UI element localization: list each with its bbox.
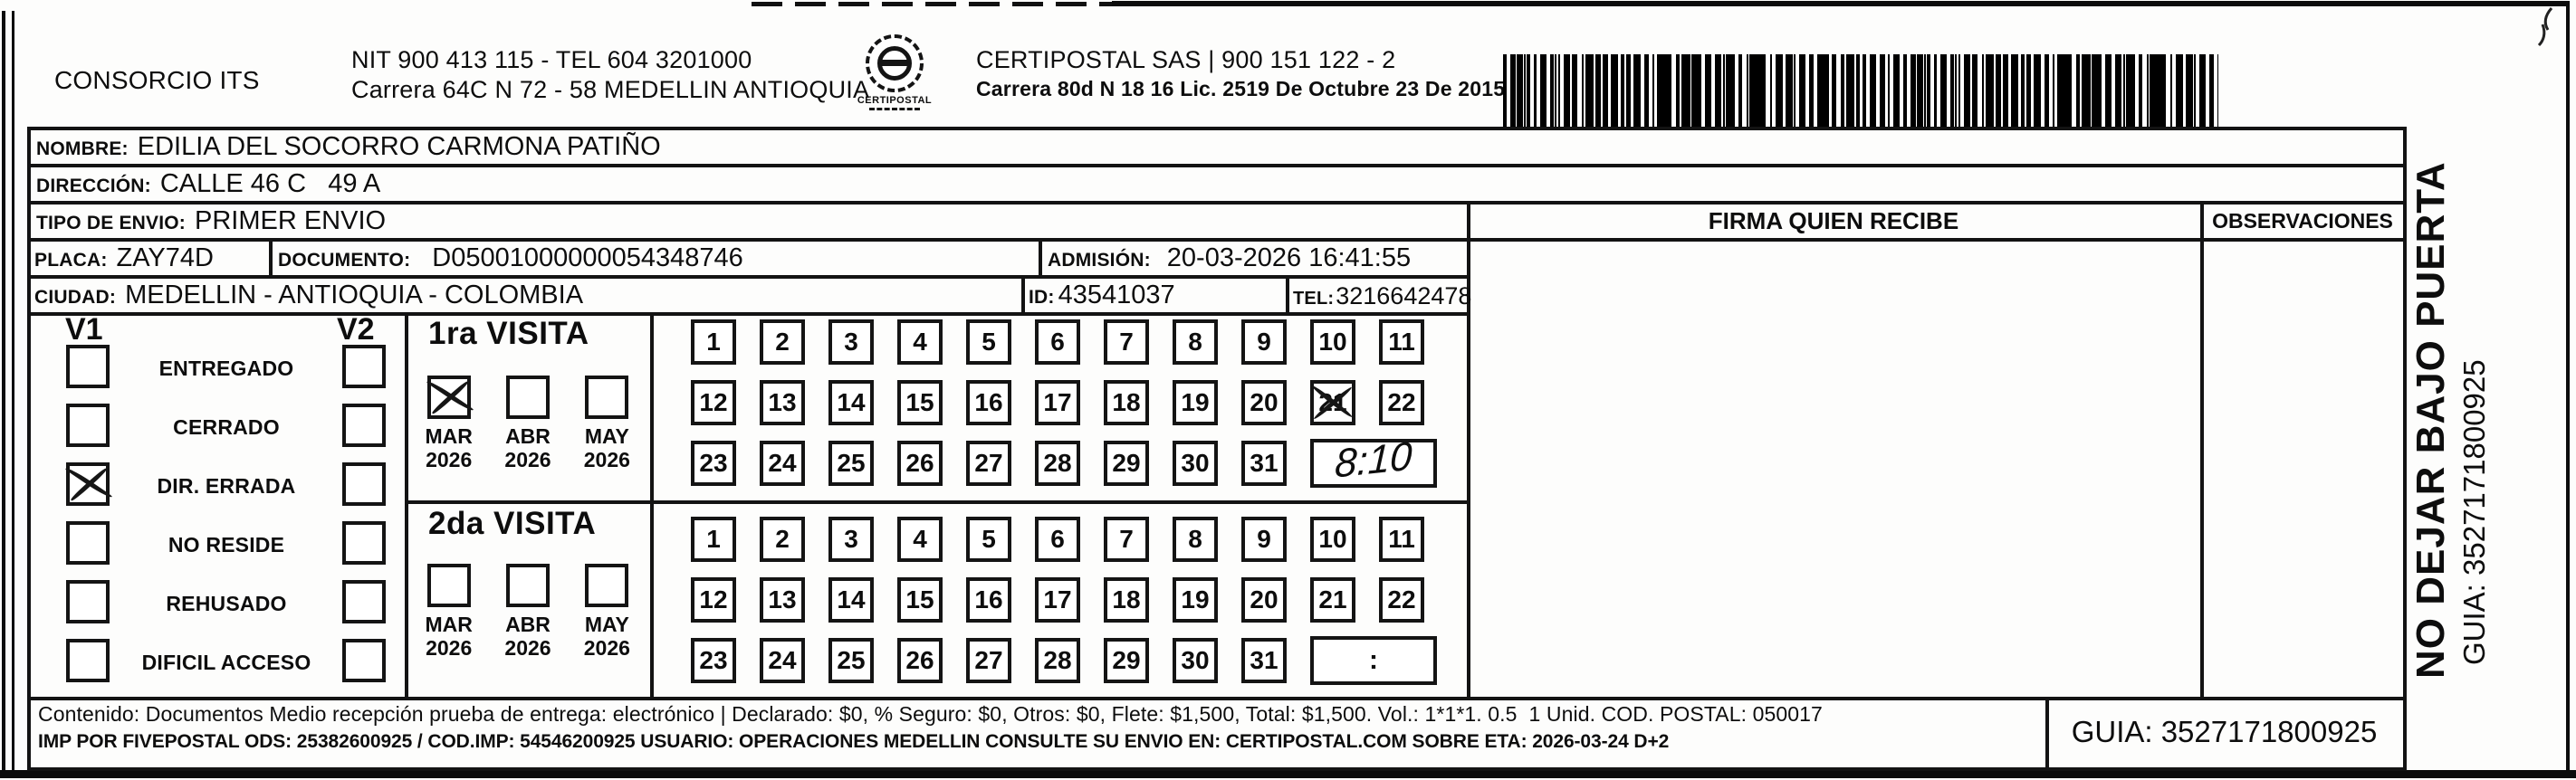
- ciudad-value: MEDELLIN - ANTIOQUIA - COLOMBIA: [125, 281, 583, 310]
- tel-cell: TEL: 3216642478: [1293, 282, 1471, 310]
- month-checkbox[interactable]: [427, 564, 471, 607]
- barcode-icon: [1503, 54, 2218, 127]
- day-cell[interactable]: 6: [1035, 319, 1080, 365]
- v1-checkbox[interactable]: [66, 521, 110, 565]
- day-cell[interactable]: 11: [1379, 517, 1424, 562]
- company-name-line: CERTIPOSTAL SAS | 900 151 122 - 2: [976, 45, 1505, 75]
- day-cell[interactable]: 4: [897, 319, 943, 365]
- handwritten-time: 8:10: [1335, 433, 1413, 487]
- year-label: 2026: [504, 636, 551, 660]
- day-cell[interactable]: 1: [691, 517, 736, 562]
- v2-checkbox[interactable]: [342, 639, 386, 682]
- day-cell[interactable]: 7: [1104, 517, 1149, 562]
- status-option-row: NO RESIDE: [27, 521, 405, 580]
- v1-checkbox[interactable]: [66, 580, 110, 623]
- day-cell[interactable]: 28: [1035, 638, 1080, 683]
- v2-checkbox[interactable]: [342, 462, 386, 506]
- day-cell[interactable]: 11: [1379, 319, 1424, 365]
- status-option-label: DIFICIL ACCESO: [118, 651, 335, 675]
- second-visit-time-box[interactable]: :: [1310, 636, 1437, 685]
- day-cell[interactable]: 20: [1241, 577, 1287, 623]
- day-cell[interactable]: 23: [691, 441, 736, 486]
- year-label: 2026: [426, 448, 472, 471]
- status-option-row: DIR. ERRADA: [27, 462, 405, 521]
- day-cell[interactable]: 23: [691, 638, 736, 683]
- day-cell[interactable]: 14: [828, 577, 874, 623]
- v2-checkbox[interactable]: [342, 404, 386, 447]
- ciudad-cell: CIUDAD: MEDELLIN - ANTIOQUIA - COLOMBIA: [34, 281, 583, 310]
- day-cell[interactable]: 12: [691, 380, 736, 425]
- month-label: ABR: [505, 424, 551, 448]
- day-cell[interactable]: 30: [1173, 638, 1218, 683]
- scan-bottom-line: [0, 770, 2576, 778]
- day-cell[interactable]: 19: [1173, 380, 1218, 425]
- placa-label: PLACA:: [34, 250, 108, 271]
- tel-value: 3216642478: [1336, 282, 1471, 310]
- second-visit-title: 2da VISITA: [428, 506, 596, 542]
- ciudad-label: CIUDAD:: [34, 287, 116, 309]
- status-option-label: REHUSADO: [118, 592, 335, 616]
- direccion-row: DIRECCIÓN: CALLE 46 C 49 A: [36, 169, 380, 199]
- status-option-row: REHUSADO: [27, 580, 405, 639]
- documento-cell: DOCUMENTO: D05001000000054348746: [278, 243, 743, 273]
- month-option: MAY 2026: [572, 564, 642, 660]
- month-checkbox[interactable]: [506, 376, 550, 419]
- nombre-row: NOMBRE: EDILIA DEL SOCORRO CARMONA PATIÑ…: [36, 132, 661, 162]
- day-cell[interactable]: 17: [1035, 577, 1080, 623]
- day-cell[interactable]: 25: [828, 638, 874, 683]
- day-cell[interactable]: 10: [1310, 319, 1355, 365]
- day-cell[interactable]: 3: [828, 517, 874, 562]
- guia-number-vertical: GUIA: 3527171800925: [2456, 158, 2494, 665]
- second-visit-months: MAR 2026 ABR 2026 MAY 2026: [414, 564, 642, 660]
- admision-value: 20-03-2026 16:41:55: [1167, 243, 1411, 273]
- time-colon: :: [1369, 645, 1378, 676]
- day-cell[interactable]: 7: [1104, 319, 1149, 365]
- day-cell[interactable]: 26: [897, 638, 943, 683]
- month-label: ABR: [505, 613, 551, 636]
- month-option: ABR 2026: [493, 564, 562, 660]
- month-option: MAY 2026: [572, 376, 642, 471]
- id-value: 43541037: [1058, 281, 1175, 310]
- day-cell[interactable]: 18: [1104, 380, 1149, 425]
- day-cell[interactable]: 13: [760, 577, 805, 623]
- id-cell: ID: 43541037: [1029, 281, 1175, 310]
- day-cell[interactable]: 24: [760, 638, 805, 683]
- day-cell[interactable]: 8: [1173, 517, 1218, 562]
- direccion-value: CALLE 46 C 49 A: [160, 169, 380, 199]
- day-cell[interactable]: 13: [760, 380, 805, 425]
- day-cell[interactable]: 5: [966, 319, 1011, 365]
- month-option: ABR 2026: [493, 376, 562, 471]
- logo-underline: [869, 108, 920, 110]
- v1-column-header: V1: [65, 312, 103, 347]
- day-cell[interactable]: 22: [1379, 380, 1424, 425]
- tel-label: TEL:: [1293, 289, 1334, 309]
- sender-address-block: NIT 900 413 115 - TEL 604 3201000 Carrer…: [351, 45, 869, 105]
- torn-edge-line: [12, 11, 14, 776]
- status-options: ENTREGADO CERRADO DIR. ERRADA: [27, 345, 405, 698]
- day-cell[interactable]: 2: [760, 517, 805, 562]
- day-cell[interactable]: 25: [828, 441, 874, 486]
- guia-number-box: GUIA: 3527171800925: [2045, 697, 2403, 767]
- day-cell[interactable]: 24: [760, 441, 805, 486]
- v2-checkbox[interactable]: [342, 345, 386, 388]
- observaciones-area[interactable]: [2204, 242, 2399, 693]
- certipostal-logo: CERTIPOSTAL: [851, 34, 938, 110]
- firma-signature-area[interactable]: [1470, 242, 2197, 693]
- status-option-label: NO RESIDE: [118, 533, 335, 557]
- logo-caption: CERTIPOSTAL: [851, 95, 938, 106]
- day-cell[interactable]: 5: [966, 517, 1011, 562]
- day-cell[interactable]: 28: [1035, 441, 1080, 486]
- day-cell[interactable]: 27: [966, 638, 1011, 683]
- v2-checkbox[interactable]: [342, 580, 386, 623]
- tipo-envio-value: PRIMER ENVIO: [195, 206, 386, 236]
- admision-label: ADMISIÓN:: [1048, 250, 1151, 271]
- day-cell[interactable]: 4: [897, 517, 943, 562]
- status-option-label: DIR. ERRADA: [118, 474, 335, 499]
- day-cell[interactable]: 21: [1310, 577, 1355, 623]
- firma-column-header: FIRMA QUIEN RECIBE: [1467, 207, 2200, 235]
- nombre-value: EDILIA DEL SOCORRO CARMONA PATIÑO: [138, 132, 661, 162]
- footer-imp-line: IMP POR FIVEPOSTAL ODS: 25382600925 / CO…: [38, 731, 1669, 753]
- no-dejar-warning: NO DEJAR BAJO PUERTA: [2407, 136, 2456, 679]
- status-option-row: ENTREGADO: [27, 345, 405, 404]
- day-cell[interactable]: 10: [1310, 517, 1355, 562]
- day-cell[interactable]: 18: [1104, 577, 1149, 623]
- month-label: MAR: [425, 613, 472, 636]
- month-checkbox[interactable]: [585, 564, 628, 607]
- first-visit-time-box[interactable]: 8:10: [1310, 439, 1437, 488]
- day-cell[interactable]: 12: [691, 577, 736, 623]
- year-label: 2026: [426, 636, 472, 660]
- day-cell[interactable]: 31: [1241, 441, 1287, 486]
- placa-cell: PLACA: ZAY74D: [34, 243, 214, 273]
- admision-cell: ADMISIÓN: 20-03-2026 16:41:55: [1048, 243, 1411, 273]
- v2-column-header: V2: [337, 312, 375, 347]
- day-cell[interactable]: 30: [1173, 441, 1218, 486]
- day-cell[interactable]: 2: [760, 319, 805, 365]
- id-label: ID:: [1029, 287, 1055, 309]
- status-option-row: CERRADO: [27, 404, 405, 462]
- month-checkbox[interactable]: [506, 564, 550, 607]
- year-label: 2026: [504, 448, 551, 471]
- company-street-line: Carrera 80d N 18 16 Lic. 2519 De Octubre…: [976, 75, 1505, 102]
- v2-checkbox[interactable]: [342, 521, 386, 565]
- documento-value: D05001000000054348746: [432, 243, 743, 273]
- v1-checkbox[interactable]: [66, 639, 110, 682]
- footer-content-line: Contenido: Documentos Medio recepción pr…: [38, 702, 1823, 727]
- v1-checkbox[interactable]: [66, 345, 110, 388]
- day-cell[interactable]: 9: [1241, 517, 1287, 562]
- day-cell[interactable]: 3: [828, 319, 874, 365]
- day-cell[interactable]: 16: [966, 380, 1011, 425]
- year-label: 2026: [584, 448, 630, 471]
- day-cell[interactable]: 6: [1035, 517, 1080, 562]
- day-cell[interactable]: 27: [966, 441, 1011, 486]
- first-visit-months: MAR 2026 ABR 2026 MAY 2026: [414, 376, 642, 471]
- documento-label: DOCUMENTO:: [278, 250, 410, 271]
- day-cell[interactable]: 17: [1035, 380, 1080, 425]
- observaciones-column-header: OBSERVACIONES: [2202, 209, 2403, 233]
- status-panel: V1 V2 ENTREGADO CERRADO DIR. ERRADA: [27, 312, 405, 697]
- day-cell[interactable]: 15: [897, 577, 943, 623]
- month-label: MAY: [585, 613, 629, 636]
- month-checkbox[interactable]: [585, 376, 628, 419]
- delivery-form-page: CONSORCIO ITS NIT 900 413 115 - TEL 604 …: [0, 0, 2576, 780]
- day-cell[interactable]: 1: [691, 319, 736, 365]
- consorcio-name: CONSORCIO ITS: [54, 65, 260, 95]
- placa-value: ZAY74D: [117, 243, 214, 273]
- day-cell[interactable]: 29: [1104, 441, 1149, 486]
- day-cell[interactable]: 8: [1173, 319, 1218, 365]
- day-cell[interactable]: 20: [1241, 380, 1287, 425]
- torn-edge-line: [2, 11, 5, 776]
- first-visit-title: 1ra VISITA: [428, 316, 589, 352]
- month-option: MAR 2026: [414, 564, 484, 660]
- company-address-block: CERTIPOSTAL SAS | 900 151 122 - 2 Carrer…: [976, 45, 1505, 102]
- day-cell[interactable]: 31: [1241, 638, 1287, 683]
- month-label: MAY: [585, 424, 629, 448]
- day-cell[interactable]: 15: [897, 380, 943, 425]
- month-checkbox[interactable]: [427, 376, 471, 419]
- month-label: MAR: [425, 424, 472, 448]
- day-cell[interactable]: 19: [1173, 577, 1218, 623]
- tipo-envio-row: TIPO DE ENVIO: PRIMER ENVIO: [36, 206, 386, 236]
- sender-street-line: Carrera 64C N 72 - 58 MEDELLIN ANTIOQUIA: [351, 75, 869, 105]
- month-option: MAR 2026: [414, 376, 484, 471]
- status-option-label: CERRADO: [118, 415, 335, 440]
- status-option-label: ENTREGADO: [118, 357, 335, 381]
- day-cell[interactable]: 9: [1241, 319, 1287, 365]
- tipo-envio-label: TIPO DE ENVIO:: [36, 213, 186, 234]
- day-cell[interactable]: 29: [1104, 638, 1149, 683]
- page-right-border: [2566, 5, 2570, 776]
- sender-nit-line: NIT 900 413 115 - TEL 604 3201000: [351, 45, 869, 75]
- scan-top-line: [752, 2, 1114, 6]
- day-cell[interactable]: 22: [1379, 577, 1424, 623]
- day-cell[interactable]: 21: [1310, 380, 1355, 425]
- status-option-row: DIFICIL ACCESO: [27, 639, 405, 698]
- logo-core-icon: [877, 46, 912, 81]
- year-label: 2026: [584, 636, 630, 660]
- day-cell[interactable]: 16: [966, 577, 1011, 623]
- scan-squiggle-mark: [2532, 5, 2561, 47]
- direccion-label: DIRECCIÓN:: [36, 176, 151, 197]
- v1-checkbox[interactable]: [66, 404, 110, 447]
- day-cell[interactable]: 14: [828, 380, 874, 425]
- logo-ring-icon: [866, 34, 924, 92]
- v1-checkbox[interactable]: [66, 462, 110, 506]
- scan-top-line: [1112, 1, 2570, 6]
- nombre-label: NOMBRE:: [36, 138, 129, 160]
- day-cell[interactable]: 26: [897, 441, 943, 486]
